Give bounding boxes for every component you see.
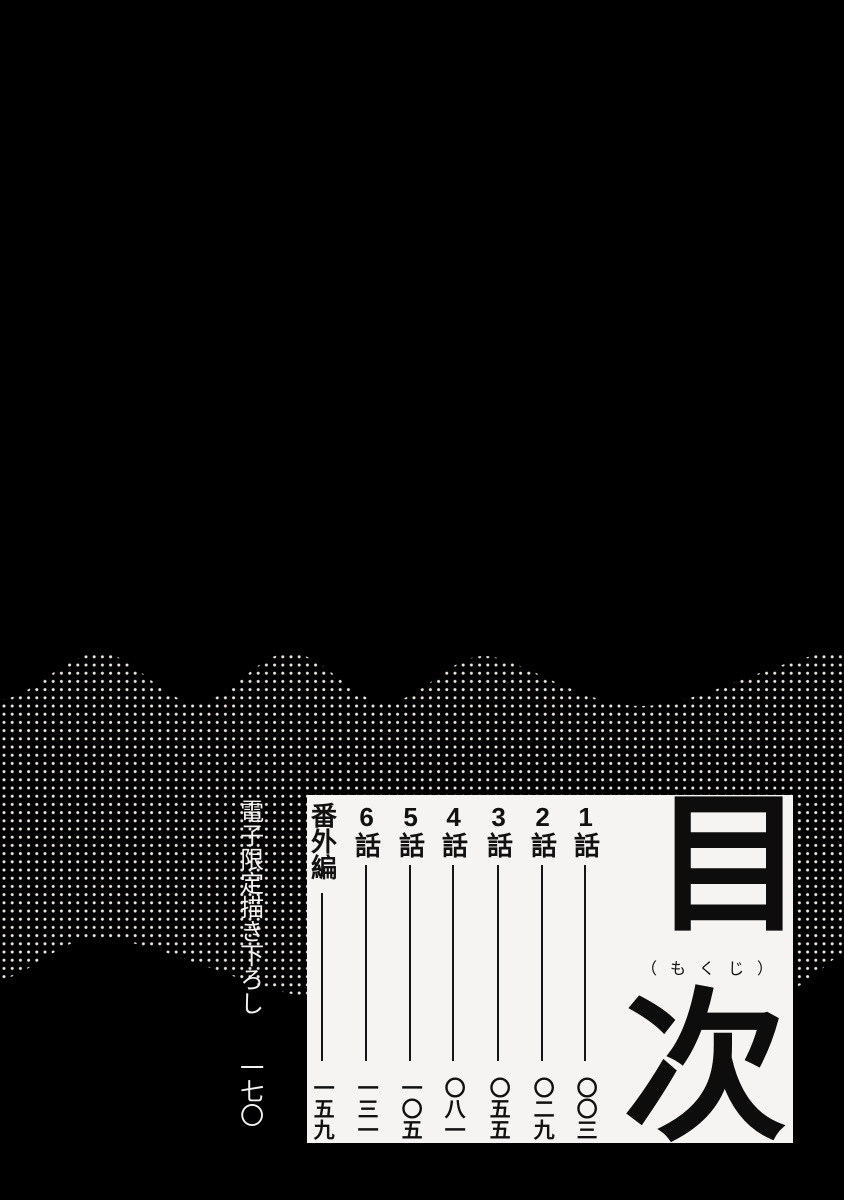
title-reading-mokuji: （もくじ） [641, 955, 786, 979]
leader-line [497, 865, 499, 1061]
toc-entry: 4話 〇八一 [436, 795, 470, 1143]
toc-entry: 1話 〇〇三 [568, 795, 602, 1143]
toc-entry-label: 5話 [395, 802, 424, 858]
toc-entry-label: 6話 [351, 802, 380, 858]
leader-line [409, 865, 411, 1061]
manga-toc-page: 電子限定描き下ろし一七〇 目 （もくじ） 次 1話 〇〇三 2話 〇二九 3話 … [0, 0, 844, 1200]
toc-entry-page-number: 一三一 [355, 1077, 377, 1140]
digital-exclusive-note: 電子限定描き下ろし一七〇 [236, 799, 262, 1199]
leader-line [584, 865, 586, 1061]
toc-entry-page-number: 一〇五 [399, 1077, 421, 1140]
toc-entry-label: 3話 [483, 802, 512, 858]
toc-entry: 6話 一三一 [349, 795, 383, 1143]
toc-entry: 番外編 一五九 [307, 795, 339, 1143]
leader-line [365, 865, 367, 1061]
toc-entry-page-number: 〇〇三 [574, 1077, 596, 1140]
toc-entry-page-number: 〇八一 [442, 1077, 464, 1140]
toc-entry: 5話 一〇五 [393, 795, 427, 1143]
leader-line [541, 865, 543, 1061]
toc-entry-label: 1話 [570, 802, 599, 858]
toc-entry: 2話 〇二九 [525, 795, 559, 1143]
toc-entry-label: 2話 [527, 802, 556, 858]
title-kanji-me: 目 [653, 795, 793, 947]
toc-entry-page-number: 〇五五 [487, 1077, 509, 1140]
digital-exclusive-label: 電子限定描き下ろし [236, 799, 263, 1015]
toc-entry-label: 番外編 [307, 802, 336, 880]
leader-line [321, 893, 323, 1061]
toc-entry: 3話 〇五五 [481, 795, 515, 1143]
toc-entry-page-number: 一五九 [311, 1077, 333, 1140]
toc-entry-label: 4話 [438, 802, 467, 858]
digital-exclusive-page-number: 一七〇 [236, 1055, 262, 1127]
title-kanji-ji: 次 [623, 985, 787, 1143]
toc-panel: 目 （もくじ） 次 1話 〇〇三 2話 〇二九 3話 〇五五 4話 〇八一 5 [307, 795, 793, 1143]
leader-line [452, 865, 454, 1061]
toc-entry-page-number: 〇二九 [531, 1077, 553, 1140]
